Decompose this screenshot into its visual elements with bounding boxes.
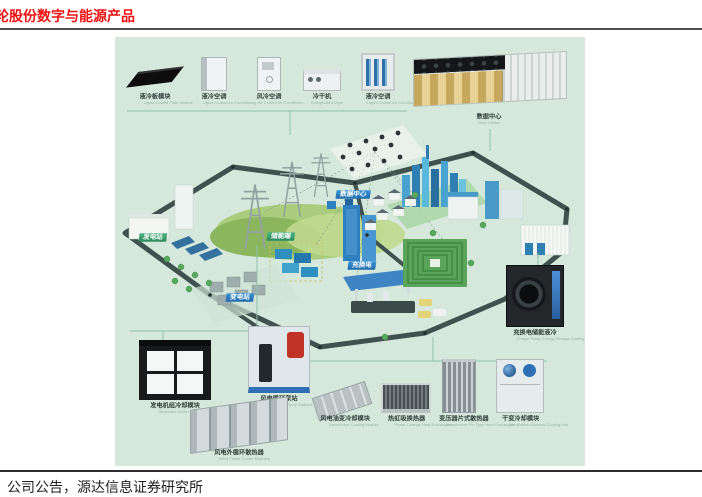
badge-power-station: 发电站 bbox=[138, 233, 167, 242]
data-center-label-zh: 数据中心 bbox=[442, 111, 536, 120]
wind-pump-station-icon bbox=[248, 326, 310, 393]
product-label-en: Transformer Fin Type Heat Exchanger bbox=[446, 423, 472, 427]
data-center-container-icon bbox=[413, 51, 567, 107]
product-label-zh: 充换电储能液冷 bbox=[506, 327, 563, 336]
energy-products-figure: 液冷板模块 Liquid Cooled Plate Module 液冷空调 Li… bbox=[115, 37, 585, 466]
product-liquid-cooling-unit: 液冷空调 Liquid Cooled Air Conditioning bbox=[350, 51, 406, 112]
product-label-zh: 液冷空调 bbox=[197, 91, 232, 100]
product-label-en: Generator Cooler Modules bbox=[158, 410, 192, 414]
product-label-en: Air Cooled Air Conditioner bbox=[258, 101, 280, 105]
air-cooled-ac-icon bbox=[257, 57, 281, 91]
product-label-en: Charge Swap Energy Storage Cooling bbox=[517, 337, 554, 341]
data-center-label-en: Data Center bbox=[459, 121, 520, 125]
product-label-zh: 液冷空调 bbox=[361, 91, 396, 100]
external-radiator-icon bbox=[190, 396, 288, 454]
power-plant-buildings bbox=[129, 185, 223, 261]
liquid-cooling-cabinet-icon bbox=[201, 57, 227, 91]
product-label-en: Transformer Blowers Cooling Unit bbox=[508, 423, 531, 427]
product-dry-transformer-cooling: 干变冷却模块 Transformer Blowers Cooling Unit bbox=[491, 359, 549, 434]
product-label-zh: 风电外循环散热器 bbox=[208, 447, 270, 456]
badge-substation: 变电站 bbox=[225, 293, 254, 302]
liquid-cooling-unit-icon bbox=[361, 53, 395, 91]
product-label-zh: 风冷空调 bbox=[252, 91, 287, 100]
liquid-cooling-plate-icon bbox=[126, 66, 184, 87]
thermosiphon-exchanger-icon bbox=[381, 383, 431, 413]
product-label-en: Liquid Cooled Air Conditioning bbox=[203, 101, 225, 105]
product-label-zh: 变压器片式散热器 bbox=[439, 413, 479, 422]
product-label-zh: 风电油变冷却模块 bbox=[320, 413, 363, 422]
footer-rule bbox=[0, 470, 702, 472]
product-label-zh: 液冷板模块 bbox=[138, 91, 173, 100]
fin-radiator-icon bbox=[442, 359, 476, 413]
product-external-radiator: 风电外循环散热器 Wind Power Cooler Modules bbox=[189, 401, 289, 466]
source-note: 公司公告，源达信息证券研究所 bbox=[7, 477, 203, 497]
data-center-label: 数据中心 Data Center bbox=[413, 111, 565, 132]
maze-park bbox=[403, 239, 467, 287]
product-label-en: Refrigerated Dryer bbox=[311, 101, 333, 105]
product-refrigerated-dryer: 冷干机 Refrigerated Dryer bbox=[294, 51, 350, 112]
title-rule bbox=[0, 28, 702, 30]
page-title: 轮股份数字与能源产品 bbox=[0, 6, 135, 26]
product-liquid-cooling-plate: 液冷板模块 Liquid Cooled Plate Module bbox=[127, 51, 183, 112]
product-label-zh: 干变冷却模块 bbox=[502, 413, 538, 422]
badge-storage: 储能端 bbox=[266, 232, 295, 241]
product-label-en: Wind Power Cooler Modules bbox=[219, 457, 259, 461]
refrigerated-dryer-icon bbox=[303, 69, 341, 91]
product-label-en: Liquid Cooled Air Conditioning bbox=[367, 101, 389, 105]
product-air-cooled-ac: 风冷空调 Air Cooled Air Conditioner bbox=[241, 51, 297, 112]
badge-charging: 充换电 bbox=[347, 261, 376, 270]
product-oil-transformer-cooling: 风电油变冷却模块 Transformer Cooling Module bbox=[307, 371, 377, 434]
product-liquid-cooled-ac: 液冷空调 Liquid Cooled Air Conditioning bbox=[186, 51, 242, 112]
product-storage-liquid-cooling: 充换电储能液冷 Charge Swap Energy Storage Cooli… bbox=[489, 265, 581, 348]
product-label-zh: 热虹吸换热器 bbox=[388, 413, 424, 422]
storage-liquid-cooling-icon bbox=[506, 265, 564, 327]
product-fin-radiator: 变压器片式散热器 Transformer Fin Type Heat Excha… bbox=[427, 359, 491, 434]
badge-data-center: 数据中心 bbox=[335, 190, 371, 199]
dry-transformer-cooling-icon bbox=[496, 359, 544, 413]
product-label-zh: 冷干机 bbox=[305, 91, 340, 100]
generator-cooling-module-icon bbox=[139, 340, 211, 400]
product-label-en: Transformer Cooling Module bbox=[328, 423, 356, 427]
product-label-en: Liquid Cooled Plate Module bbox=[144, 101, 166, 105]
product-label-en: Phase Change Heat Exchanger bbox=[394, 423, 417, 427]
